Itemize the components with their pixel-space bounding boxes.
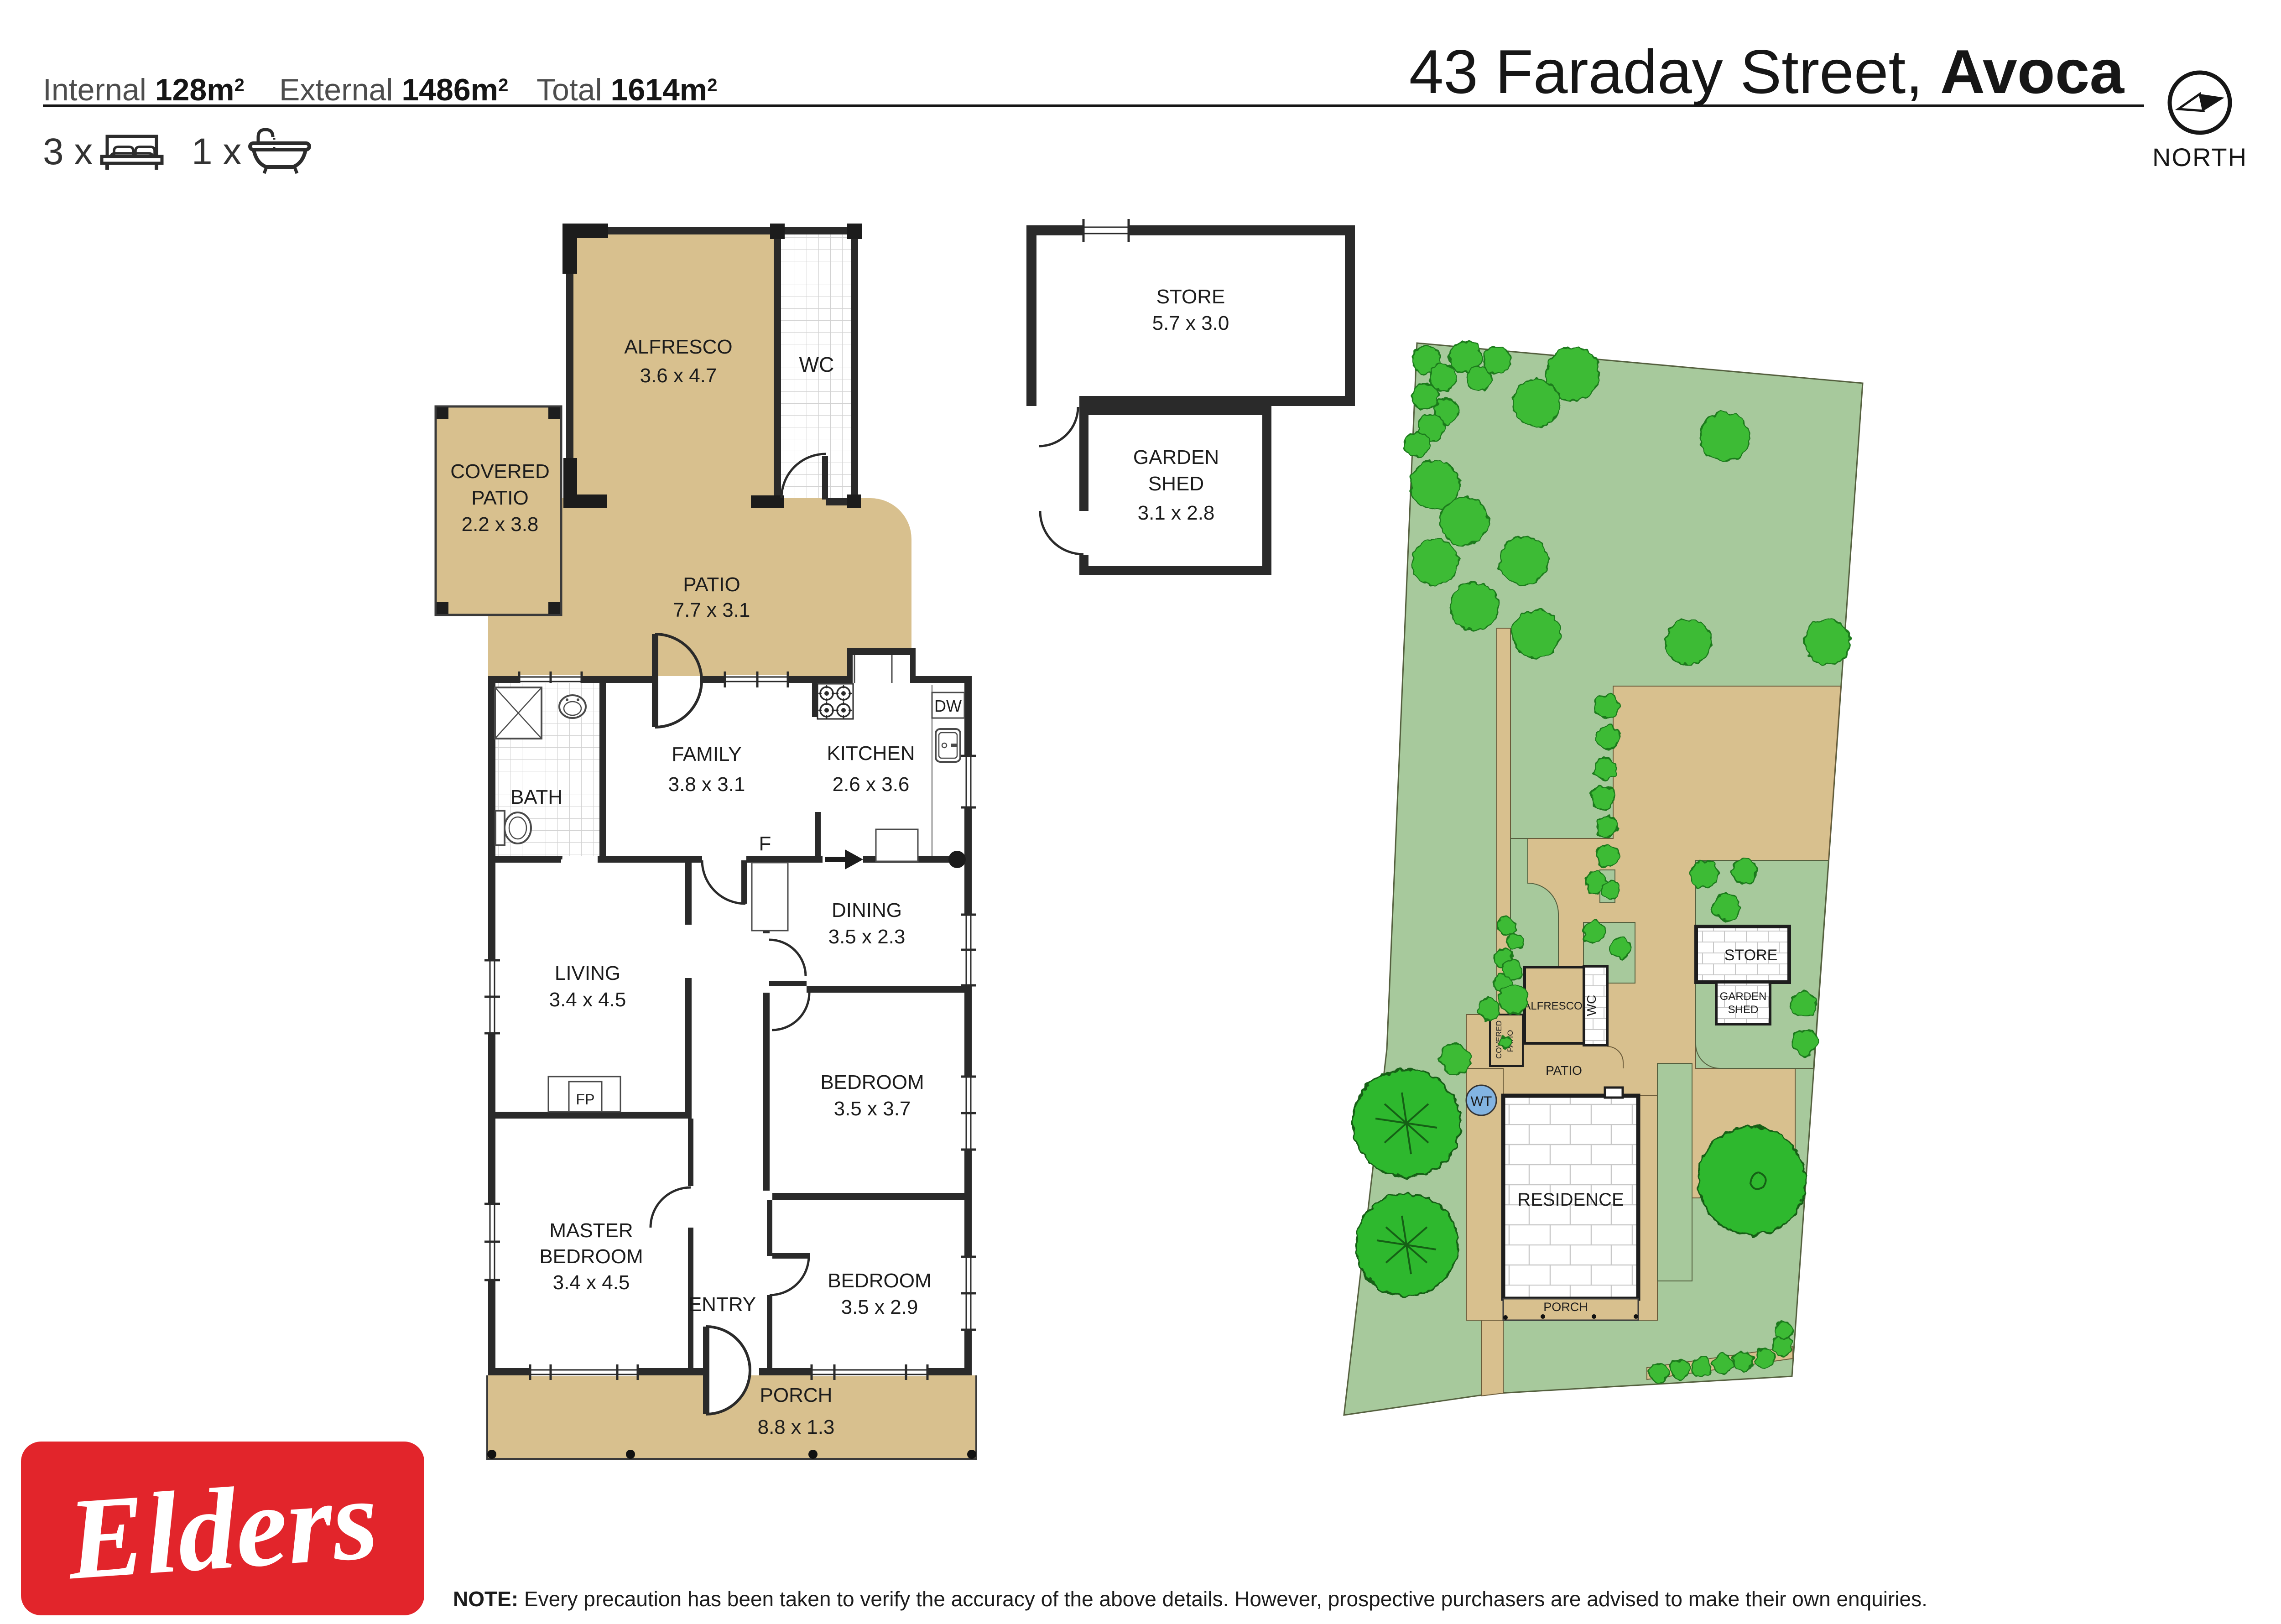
svg-text:PATIO: PATIO <box>1546 1063 1582 1077</box>
svg-text:PORCH: PORCH <box>760 1384 833 1406</box>
svg-text:ENTRY: ENTRY <box>688 1293 756 1316</box>
svg-text:3.5 x 3.7: 3.5 x 3.7 <box>834 1098 911 1120</box>
svg-text:GARDEN: GARDEN <box>1133 446 1219 468</box>
svg-text:3.4 x 4.5: 3.4 x 4.5 <box>553 1271 630 1294</box>
svg-text:PORCH: PORCH <box>1543 1300 1588 1314</box>
svg-text:5.7 x 3.0: 5.7 x 3.0 <box>1152 312 1229 334</box>
svg-text:DINING: DINING <box>832 899 902 921</box>
svg-text:1 x: 1 x <box>192 131 241 172</box>
svg-text:2.2 x 3.8: 2.2 x 3.8 <box>462 513 539 536</box>
svg-text:DW: DW <box>934 697 962 715</box>
svg-text:SHED: SHED <box>1148 473 1204 495</box>
svg-text:LIVING: LIVING <box>555 962 620 984</box>
svg-text:BEDROOM: BEDROOM <box>828 1270 931 1292</box>
svg-text:PATIO: PATIO <box>683 573 740 596</box>
svg-text:GARDEN: GARDEN <box>1720 990 1767 1003</box>
svg-text:43 Faraday Street, Avoca: 43 Faraday Street, Avoca <box>1409 37 2125 106</box>
svg-text:KITCHEN: KITCHEN <box>827 742 915 765</box>
svg-text:STORE: STORE <box>1156 286 1225 308</box>
svg-text:3 x: 3 x <box>43 131 93 172</box>
svg-text:COVERED: COVERED <box>450 460 550 483</box>
svg-text:WC: WC <box>799 353 834 376</box>
svg-text:BATH: BATH <box>510 786 562 808</box>
svg-text:MASTER: MASTER <box>549 1219 633 1242</box>
svg-text:NORTH: NORTH <box>2152 143 2247 172</box>
svg-text:STORE: STORE <box>1724 947 1778 964</box>
svg-text:3.4 x 4.5: 3.4 x 4.5 <box>549 989 626 1011</box>
svg-text:SHED: SHED <box>1728 1004 1759 1016</box>
svg-text:3.5 x 2.9: 3.5 x 2.9 <box>841 1296 918 1318</box>
svg-text:Elders: Elders <box>62 1454 382 1604</box>
svg-text:7.7 x 3.1: 7.7 x 3.1 <box>673 599 750 621</box>
svg-text:WC: WC <box>1584 995 1599 1016</box>
svg-text:ALFRESCO: ALFRESCO <box>1523 1000 1582 1012</box>
svg-text:BEDROOM: BEDROOM <box>820 1071 924 1093</box>
svg-text:3.6 x 4.7: 3.6 x 4.7 <box>640 364 717 387</box>
svg-text:Total 1614m2: Total 1614m2 <box>536 73 718 107</box>
svg-text:3.1 x 2.8: 3.1 x 2.8 <box>1138 502 1215 524</box>
svg-text:PATIO: PATIO <box>471 487 529 509</box>
svg-text:8.8 x 1.3: 8.8 x 1.3 <box>758 1416 835 1438</box>
svg-text:External 1486m2: External 1486m2 <box>279 73 508 107</box>
svg-text:BEDROOM: BEDROOM <box>539 1245 643 1268</box>
svg-text:Internal 128m2: Internal 128m2 <box>43 73 245 107</box>
svg-text:3.5 x 2.3: 3.5 x 2.3 <box>828 926 906 948</box>
svg-text:F: F <box>759 833 771 855</box>
svg-text:3.8 x 3.1: 3.8 x 3.1 <box>668 773 745 796</box>
svg-text:NOTE: Every precaution has bee: NOTE: Every precaution has been taken to… <box>453 1587 1927 1611</box>
svg-text:RESIDENCE: RESIDENCE <box>1517 1190 1624 1210</box>
svg-text:2.6 x 3.6: 2.6 x 3.6 <box>833 773 910 796</box>
svg-text:FP: FP <box>576 1091 595 1108</box>
svg-text:FAMILY: FAMILY <box>672 743 741 765</box>
svg-text:WT: WT <box>1471 1094 1492 1109</box>
svg-text:ALFRESCO: ALFRESCO <box>624 336 732 358</box>
